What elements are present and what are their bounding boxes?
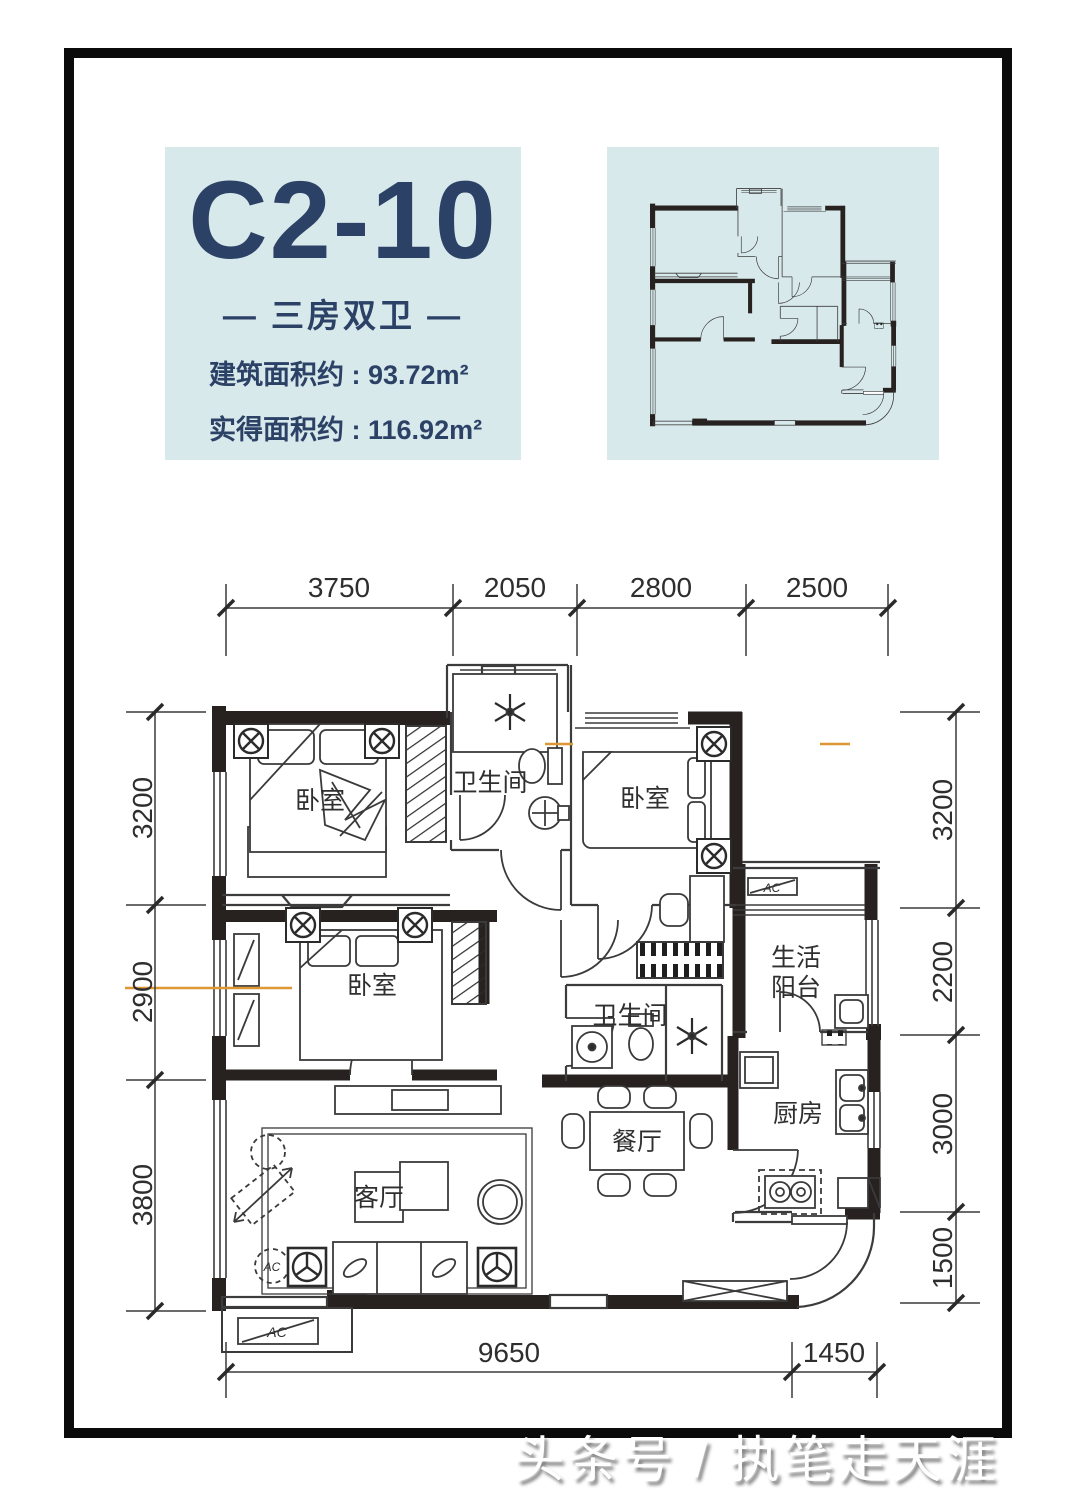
built-area-text: 建筑面积约 : 93.72m² — [209, 353, 521, 392]
unit-type-subtitle: — 三房双卫 — — [165, 289, 521, 337]
actual-area-text: 实得面积约 : 116.92m² — [209, 408, 521, 447]
watermark: 头条号 / 执笔走天涯 — [514, 1420, 1000, 1492]
floor-plan-page: C2-10 — 三房双卫 — 建筑面积约 : 93.72m² 实得面积约 : 1… — [0, 0, 1080, 1504]
unit-code-title: C2-10 — [165, 163, 521, 279]
unit-thumbnail-panel — [607, 147, 939, 460]
unit-info-panel: C2-10 — 三房双卫 — 建筑面积约 : 93.72m² 实得面积约 : 1… — [165, 147, 521, 460]
